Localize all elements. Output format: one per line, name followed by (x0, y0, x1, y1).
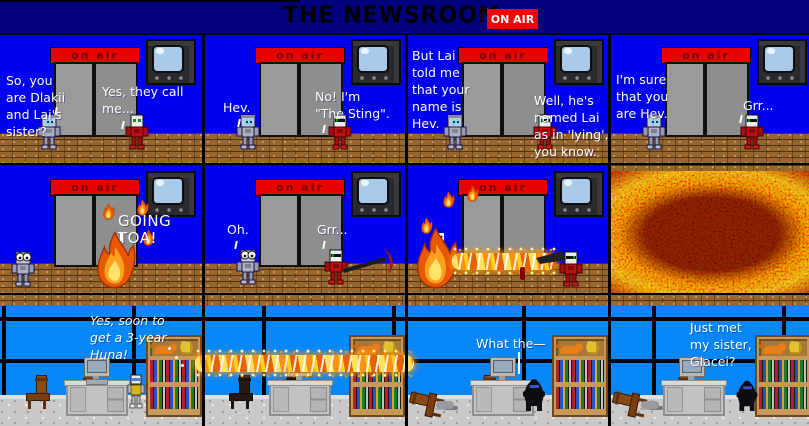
flame-icon (466, 185, 479, 202)
desk (663, 383, 725, 416)
panel-divider (202, 295, 205, 426)
tv-icon (146, 39, 196, 85)
tv-knobs (765, 76, 799, 81)
tv-icon (554, 39, 604, 85)
panel-r2p3: on air (408, 165, 610, 293)
debris (436, 401, 454, 409)
speech-left: But Lai told me that your name is Hev. (412, 47, 469, 132)
speech-right: Grr... (743, 97, 774, 114)
speech-text: Just met my sister, Glacei? (690, 319, 752, 370)
scythe-icon (343, 247, 397, 275)
office-scene-1: Yes, soon to get a 3-year Huna! (0, 295, 203, 426)
office-scene-2 (203, 295, 406, 426)
sign-text: on air (71, 181, 119, 194)
speech-tail (518, 352, 520, 374)
speech-shout: GOING TOA! (118, 213, 202, 247)
panel-divider (608, 295, 611, 426)
comic-header: THE NEWSROOM ON AIR (0, 0, 809, 33)
newsroom-comic: THE NEWSROOM ON AIR on air So, you are D… (0, 0, 809, 426)
tv-screen (560, 177, 592, 205)
thought-dot (175, 356, 178, 359)
sign-text: on air (276, 181, 324, 194)
thought-text: Yes, soon to get a 3-year Huna! (90, 312, 166, 363)
books (353, 387, 401, 409)
books (150, 387, 198, 409)
flame-icon (420, 217, 433, 234)
tv-knobs (154, 76, 188, 81)
office-scene-4: Just met my sister, Glacei? (609, 295, 809, 426)
keyboard (86, 379, 108, 385)
speech-text: What the— (476, 335, 546, 352)
tv-icon (351, 171, 401, 217)
flame-icon (442, 191, 455, 208)
mini-robot-sprite (126, 372, 146, 412)
tv-knobs (359, 76, 393, 81)
tv-knobs (359, 208, 393, 213)
trophy-icon (789, 341, 802, 354)
panel-divider (608, 33, 611, 295)
panel-r2p4 (611, 165, 809, 293)
flamethrower-icon (536, 251, 568, 265)
desk (66, 383, 128, 416)
chair (26, 375, 50, 409)
books (150, 360, 198, 382)
books (556, 387, 604, 409)
tv-screen (357, 45, 389, 73)
tv-icon (146, 171, 196, 217)
on-air-badge: ON AIR (487, 9, 538, 29)
books (759, 360, 807, 382)
top-border-line (0, 0, 300, 2)
trophy-icon (180, 341, 193, 354)
flame-icon (102, 203, 115, 220)
speech-right: No! I'm "The Sting". (315, 88, 390, 122)
red-robot-sprite (739, 114, 765, 150)
comic-title: THE NEWSROOM (283, 3, 501, 29)
newsroom-office-row: Yes, soon to get a 3-year Huna! (0, 295, 809, 426)
shocked-grey-robot-sprite (10, 251, 36, 287)
sign-text: on air (71, 49, 119, 62)
computer-monitor (490, 357, 516, 377)
trophy-icon (586, 341, 599, 354)
speech-right: Yes, they call me... (102, 83, 184, 117)
sign-text: on air (479, 181, 527, 194)
panel-r2p2: on air Oh. Grr... (205, 165, 407, 293)
bookshelf (552, 335, 608, 417)
elevator-doors-icon (665, 62, 749, 137)
charred-robot-sprite (735, 374, 759, 412)
speech-right: Well, he's named Lai as in 'lying', you … (534, 92, 609, 160)
panel-r1p4: on air I'm sure that you are Hev. Grr... (611, 33, 809, 163)
tv-screen (763, 45, 795, 73)
panel-r1p3: on air But Lai told me that your name is… (408, 33, 610, 163)
tv-icon (351, 39, 401, 85)
sign-text: on air (682, 49, 730, 62)
charred-robot-sprite (522, 372, 546, 412)
tv-screen (152, 177, 184, 205)
tv-knobs (562, 76, 596, 81)
speech-left: Hev. (223, 99, 251, 116)
speech-left: Oh. (227, 221, 249, 238)
speech-right: Grr... (317, 221, 348, 238)
speech-tail (120, 233, 122, 241)
tv-icon (757, 39, 807, 85)
office-scene-3: What the— (406, 295, 609, 426)
books (759, 387, 807, 409)
tv-screen (152, 45, 184, 73)
desk (269, 383, 331, 416)
red-drip (520, 267, 525, 280)
panel-divider (202, 33, 205, 295)
tv-screen (357, 177, 389, 205)
thought-dot (181, 364, 184, 367)
brick-edge (611, 165, 809, 171)
explosion-ring (611, 170, 809, 293)
shocked-grey-robot-sprite (235, 249, 261, 285)
panel-r1p1: on air So, you are Dlakii and Lai's sist… (0, 33, 202, 163)
speech-left: I'm sure that you are Hev. (616, 71, 668, 122)
burnt-chair (229, 375, 253, 409)
panel-divider (405, 295, 408, 426)
sign-text: on air (479, 49, 527, 62)
speech-tail (234, 241, 238, 249)
bookshelf (755, 335, 809, 417)
cat-icon (560, 346, 579, 354)
panel-divider (405, 33, 408, 295)
tv-icon (554, 171, 604, 217)
cat-icon (763, 346, 782, 354)
tv-knobs (562, 208, 596, 213)
thought-dot (168, 347, 171, 350)
sign-text: on air (276, 49, 324, 62)
panel-r1p2: on air Hev. No! I'm "The Sting". (205, 33, 407, 163)
tv-screen (560, 45, 592, 73)
books (556, 360, 604, 382)
fire-stream (195, 355, 414, 372)
red-robot-sprite (124, 114, 150, 150)
debris (641, 401, 659, 409)
panel-r2p1: on air GOING TOA! (0, 165, 202, 293)
explosion-fire (611, 165, 809, 293)
